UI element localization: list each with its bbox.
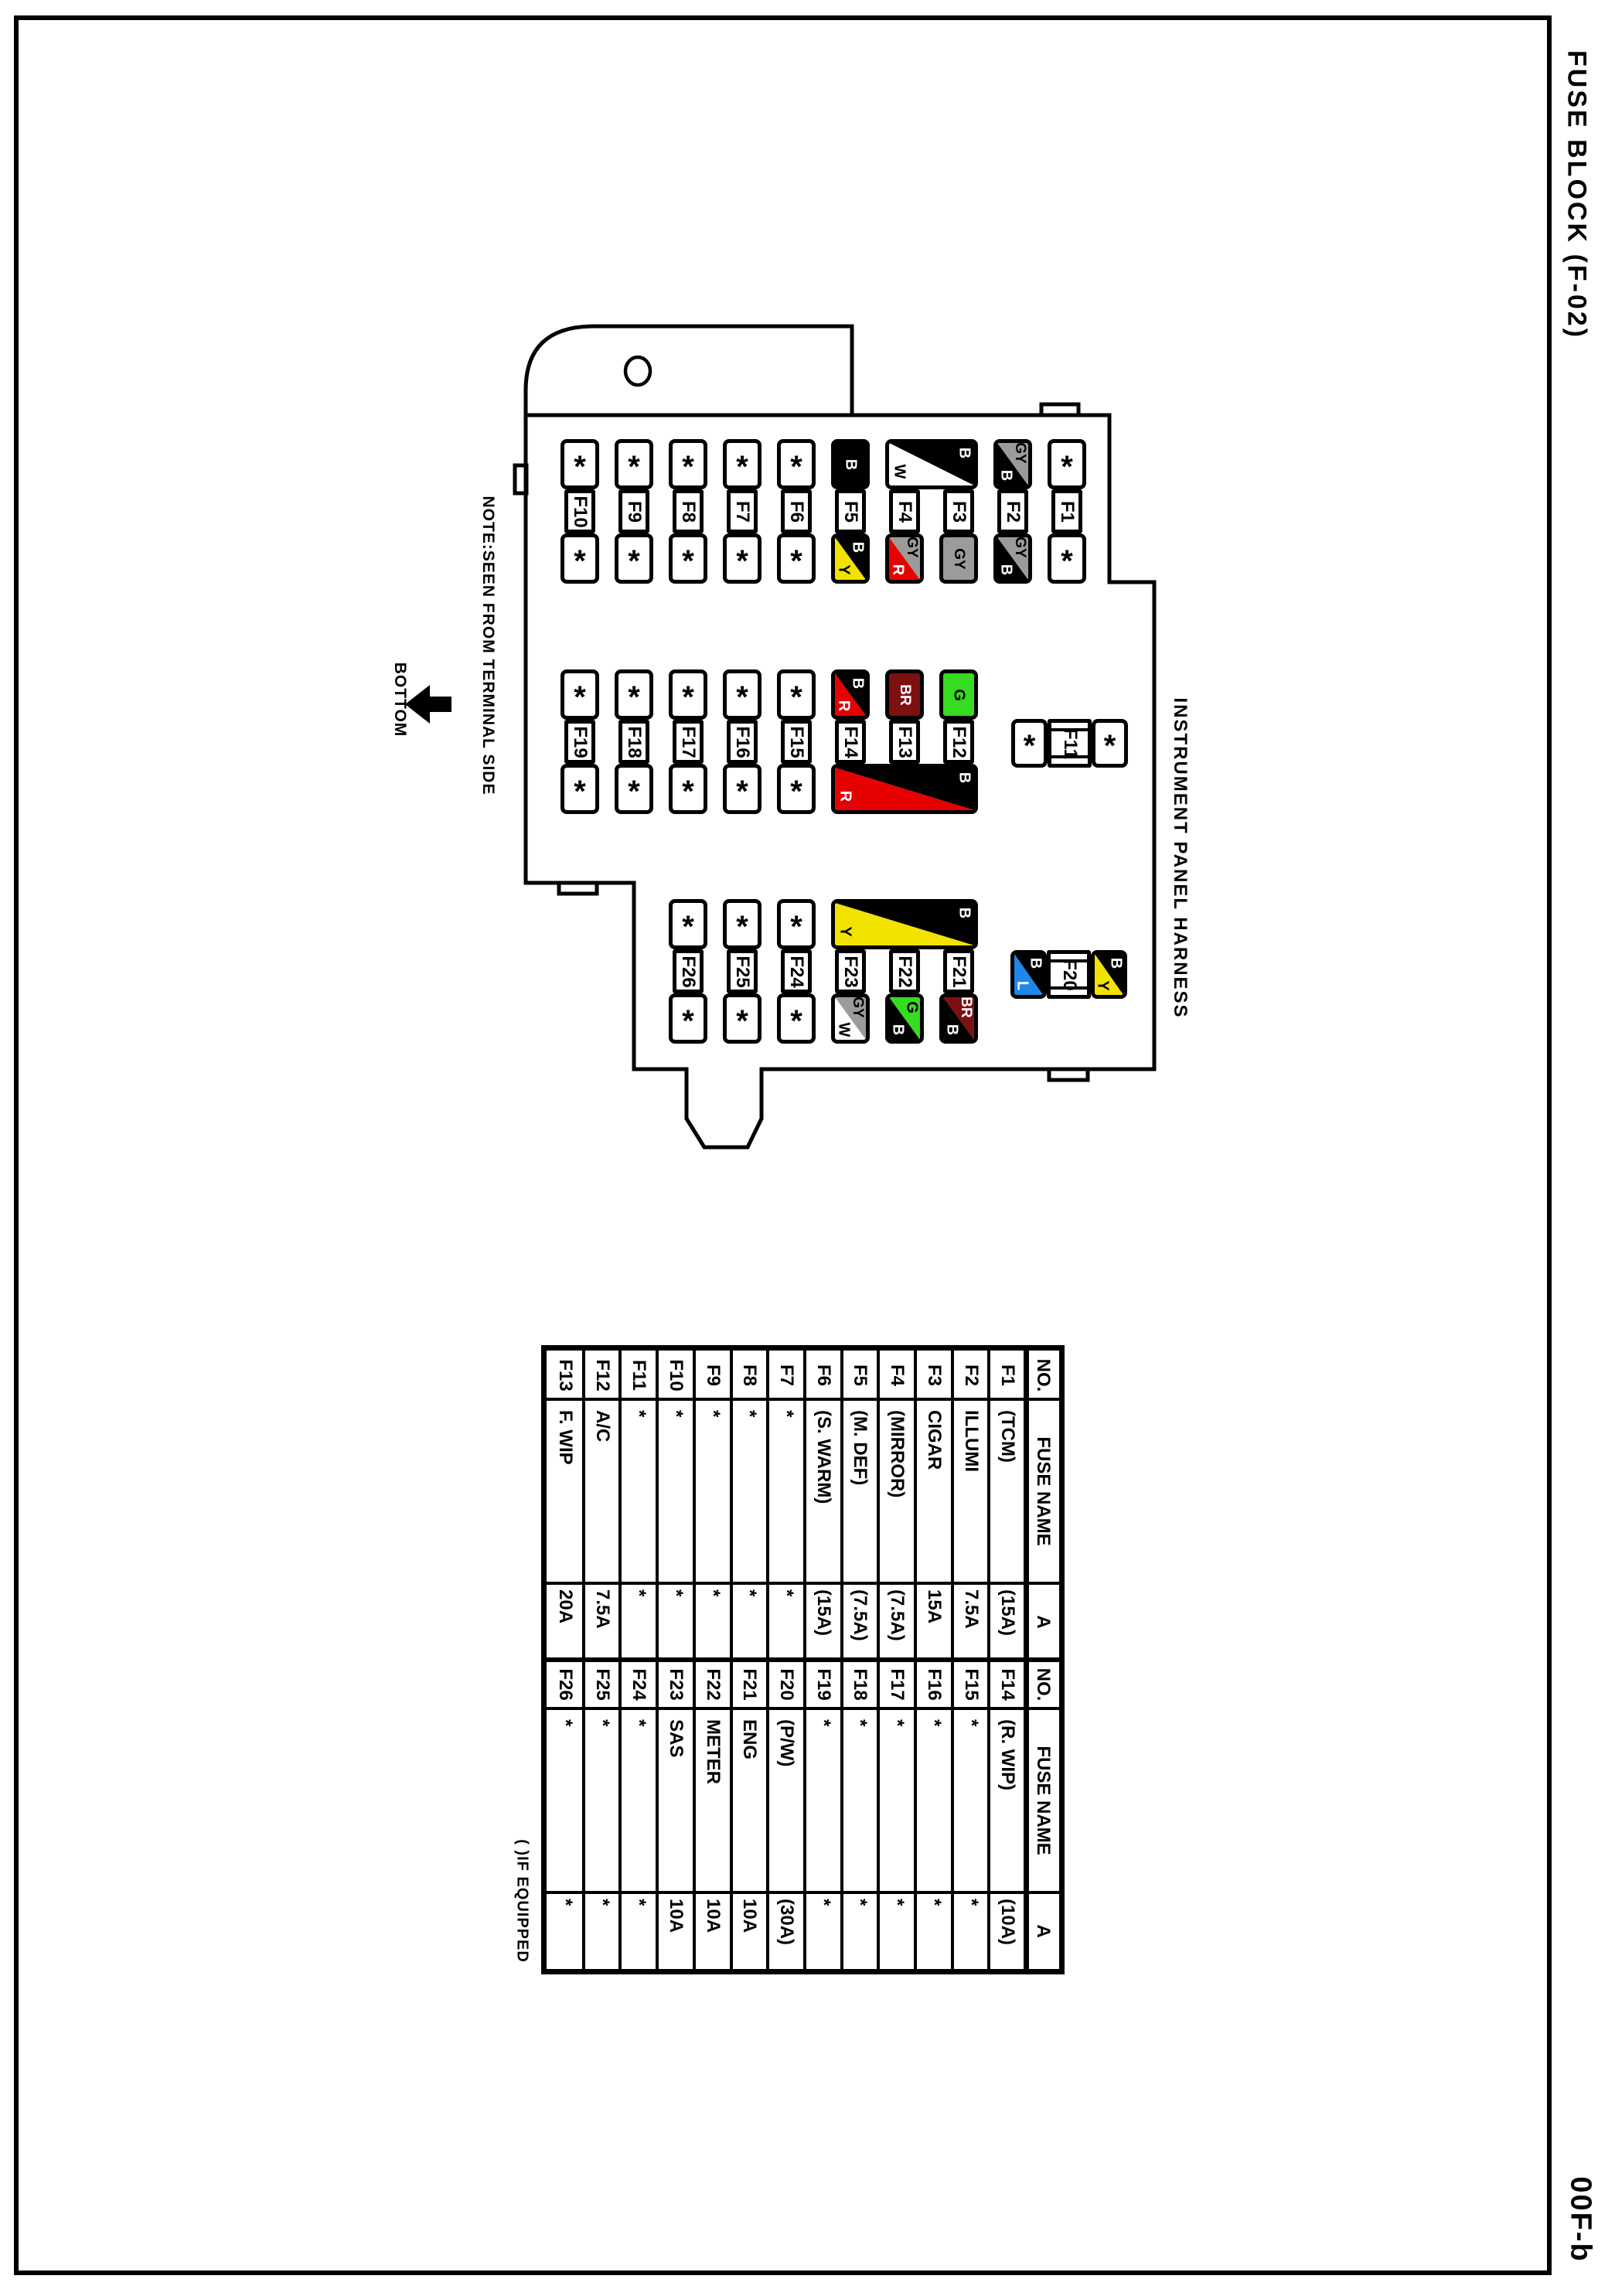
fuse-F8-label: F8 bbox=[677, 500, 699, 522]
fuse-F17-top-cap: * bbox=[669, 669, 707, 720]
cell-F4-amp: (7.5A) bbox=[886, 1589, 908, 1641]
wide-cap-row1-top-tr-code: B bbox=[956, 448, 973, 458]
cell-F8-name: * bbox=[738, 1410, 760, 1417]
fuse-F26-top-cap: * bbox=[669, 899, 707, 949]
fuse-F16-bottom-cap: * bbox=[723, 764, 762, 814]
cell-F17-amp: * bbox=[886, 1899, 908, 1906]
mounting-hole bbox=[625, 357, 650, 385]
cell-F7-no: F7 bbox=[775, 1364, 797, 1385]
fuse-F9-top-cap: * bbox=[615, 439, 653, 489]
cell-F22-no: F22 bbox=[702, 1668, 724, 1700]
cell-F8-amp: * bbox=[738, 1589, 760, 1596]
cell-F17-name: * bbox=[886, 1719, 908, 1726]
cell-F14-no: F14 bbox=[997, 1668, 1018, 1700]
cell-F5-no: F5 bbox=[849, 1364, 871, 1385]
fuse-F21-label: F21 bbox=[948, 956, 969, 987]
fuse-F10-label: F10 bbox=[569, 496, 591, 527]
cell-F6-no: F6 bbox=[813, 1364, 834, 1385]
unused-star-icon: * bbox=[682, 910, 694, 945]
fuse-F7-label: F7 bbox=[731, 500, 753, 522]
fuse-F25-bottom-cap: * bbox=[723, 993, 762, 1044]
cell-F25-amp: * bbox=[591, 1899, 613, 1906]
fuse-F10-top-cap: * bbox=[560, 439, 599, 489]
table-header-1: FUSE NAME bbox=[1032, 1436, 1054, 1545]
fuse-F21-bottom-cap-tr-code: BR bbox=[957, 996, 974, 1017]
fuse-F23-bottom-cap-bl-code: W bbox=[835, 1023, 853, 1037]
fuse-F24-top-cap: * bbox=[777, 899, 816, 949]
page-title: FUSE BLOCK (F-02) bbox=[1562, 50, 1592, 339]
cell-F5-amp: (7.5A) bbox=[849, 1589, 871, 1641]
cell-F25-no: F25 bbox=[591, 1668, 613, 1700]
fuse-F10-bottom-cap: * bbox=[560, 533, 599, 584]
table-header-3: NO. bbox=[1032, 1667, 1054, 1701]
cell-F6-name: (S. WARM) bbox=[813, 1410, 834, 1504]
fuse-F5-bottom-cap-tr-code: B bbox=[849, 541, 867, 552]
cell-F13-no: F13 bbox=[554, 1359, 576, 1391]
cell-F19-name: * bbox=[813, 1719, 834, 1726]
unused-star-icon: * bbox=[736, 544, 748, 579]
fuse-F21-bottom-cap-bl-code: B bbox=[943, 1024, 961, 1035]
unused-star-icon: * bbox=[790, 680, 802, 715]
cell-F13-amp: 20A bbox=[554, 1589, 576, 1623]
fuse-F14-top-cap bbox=[831, 669, 870, 720]
block-raised-section bbox=[526, 326, 852, 415]
fuse-F2-bottom-cap-bl-code: B bbox=[997, 564, 1015, 575]
fuse-F15-bottom-cap: * bbox=[777, 764, 816, 814]
fuse-F19-top-cap: * bbox=[560, 669, 599, 720]
fuse-F19-bottom-cap: * bbox=[560, 764, 599, 814]
cell-F18-amp: * bbox=[849, 1899, 871, 1906]
cell-F19-no: F19 bbox=[813, 1668, 834, 1700]
fuse-F26-bottom-cap: * bbox=[669, 993, 707, 1044]
unused-star-icon: * bbox=[574, 544, 586, 579]
cell-F16-amp: * bbox=[923, 1899, 945, 1906]
cell-F15-no: F15 bbox=[960, 1668, 982, 1700]
fuse-F15-label: F15 bbox=[785, 726, 807, 758]
cell-F9-no: F9 bbox=[702, 1364, 724, 1385]
cell-F20-name: (P/W) bbox=[775, 1719, 797, 1766]
cell-F8-no: F8 bbox=[738, 1364, 760, 1385]
fuse-F12-top-cap-code: G bbox=[950, 689, 968, 701]
unused-star-icon: * bbox=[628, 680, 640, 715]
cell-F21-no: F21 bbox=[738, 1668, 760, 1700]
cell-F19-amp: * bbox=[813, 1899, 834, 1906]
cell-F1-amp: (15A) bbox=[997, 1589, 1018, 1636]
cell-F24-no: F24 bbox=[628, 1668, 649, 1700]
cell-F10-name: * bbox=[665, 1410, 687, 1417]
fuse-F14-label: F14 bbox=[840, 726, 861, 758]
cell-F22-amp: 10A bbox=[702, 1899, 724, 1933]
cell-F16-name: * bbox=[923, 1719, 945, 1726]
fuse-F1-label: F1 bbox=[1056, 500, 1078, 522]
fuse-F11-right-cap: * bbox=[1092, 719, 1128, 768]
cell-F6-amp: (15A) bbox=[813, 1589, 834, 1636]
unused-star-icon: * bbox=[574, 680, 586, 715]
cell-F18-no: F18 bbox=[849, 1668, 871, 1700]
fuse-F22-bottom-cap-bl-code: B bbox=[889, 1024, 907, 1035]
unused-star-icon: * bbox=[736, 775, 748, 809]
cell-F25-name: * bbox=[591, 1719, 613, 1726]
fuse-F5-bottom-cap bbox=[831, 533, 870, 584]
cell-F21-amp: 10A bbox=[738, 1899, 760, 1933]
cell-F11-no: F11 bbox=[628, 1359, 649, 1390]
fuse-F4-label: F4 bbox=[894, 500, 915, 522]
page-code: 00F-b bbox=[1564, 2176, 1597, 2262]
fuse-F4-bottom-cap-bl-code: R bbox=[889, 564, 907, 575]
fuse-F20-left-cap-tr-code: B bbox=[1026, 958, 1044, 969]
fuse-F16-label: F16 bbox=[731, 726, 753, 758]
fuse-F4-bottom-cap-tr-code: GY bbox=[903, 537, 920, 557]
cell-F26-name: * bbox=[554, 1719, 576, 1726]
cell-F11-amp: * bbox=[628, 1589, 649, 1596]
cell-F20-no: F20 bbox=[775, 1668, 797, 1700]
unused-star-icon: * bbox=[1104, 729, 1116, 764]
fuse-F19-label: F19 bbox=[569, 726, 591, 758]
table-header-5: A bbox=[1032, 1924, 1054, 1937]
unused-star-icon: * bbox=[790, 910, 802, 945]
cell-F4-name: (MIRROR) bbox=[886, 1410, 908, 1497]
unused-star-icon: * bbox=[1024, 729, 1036, 764]
fuse-F23-bottom-cap-tr-code: GY bbox=[849, 996, 866, 1017]
cell-F12-no: F12 bbox=[591, 1359, 613, 1391]
cell-F14-name: (R. WIP) bbox=[997, 1719, 1018, 1790]
cell-F22-name: METER bbox=[702, 1719, 724, 1784]
fuse-F11-label: F11 bbox=[1059, 727, 1081, 758]
fuse-F7-top-cap: * bbox=[723, 439, 762, 489]
table-header-0: NO. bbox=[1032, 1358, 1054, 1392]
fuse-F5-label: F5 bbox=[840, 500, 861, 522]
fuse-F14-top-cap-tr-code: B bbox=[849, 677, 867, 688]
wide-cap-row2-bottom-bl-code: R bbox=[836, 790, 854, 801]
table-hline bbox=[547, 1891, 1059, 1894]
fuse-F22-bottom-cap-tr-code: G bbox=[903, 1001, 921, 1013]
fuse-F8-bottom-cap: * bbox=[669, 533, 707, 584]
fuse-F5-top-cap-code: B bbox=[842, 458, 860, 469]
cell-F1-name: (TCM) bbox=[997, 1410, 1018, 1463]
fuse-F12-label: F12 bbox=[948, 726, 969, 758]
cell-F10-no: F10 bbox=[665, 1359, 687, 1391]
terminal-side-note: NOTE:SEEN FROM TERMINAL SIDE bbox=[479, 496, 497, 795]
wide-cap-row3-top-tr-code: B bbox=[956, 908, 973, 918]
cell-F9-name: * bbox=[702, 1410, 724, 1417]
cell-F5-name: (M. DEF) bbox=[849, 1410, 871, 1485]
cell-F23-no: F23 bbox=[665, 1668, 687, 1700]
table-hline bbox=[547, 1707, 1059, 1710]
fuse-F22-label: F22 bbox=[894, 956, 915, 987]
harness-label: INSTRUMENT PANEL HARNESS bbox=[1169, 697, 1191, 1018]
bottom-label: BOTTOM bbox=[390, 663, 409, 738]
cell-F16-no: F16 bbox=[923, 1668, 945, 1700]
table-hline bbox=[547, 1398, 1059, 1401]
fuse-F2-top-cap-bl-code: B bbox=[997, 470, 1015, 481]
fuse-F13-label: F13 bbox=[894, 726, 915, 758]
table-hline bbox=[547, 1657, 1059, 1662]
fuse-F18-top-cap: * bbox=[615, 669, 653, 720]
cell-F24-name: * bbox=[628, 1719, 649, 1726]
cell-F2-amp: 7.5A bbox=[960, 1589, 982, 1629]
unused-star-icon: * bbox=[628, 450, 640, 485]
unused-star-icon: * bbox=[682, 450, 694, 485]
unused-star-icon: * bbox=[736, 1004, 748, 1039]
unused-star-icon: * bbox=[1061, 450, 1073, 485]
fuse-F20-right-cap-bl-code: Y bbox=[1094, 980, 1112, 990]
cell-F7-name: * bbox=[775, 1410, 797, 1417]
unused-star-icon: * bbox=[574, 450, 586, 485]
cell-F2-no: F2 bbox=[960, 1364, 982, 1385]
fuse-F26-label: F26 bbox=[677, 956, 699, 987]
cell-F3-no: F3 bbox=[923, 1364, 945, 1385]
fuse-F6-label: F6 bbox=[785, 500, 807, 522]
unused-star-icon: * bbox=[1061, 544, 1073, 579]
unused-star-icon: * bbox=[790, 1004, 802, 1039]
table-header-2: A bbox=[1032, 1615, 1054, 1628]
fuse-F1-top-cap: * bbox=[1048, 439, 1086, 489]
table-header-4: FUSE NAME bbox=[1032, 1746, 1054, 1855]
cell-F3-amp: 15A bbox=[923, 1589, 945, 1623]
cell-F1-no: F1 bbox=[997, 1364, 1018, 1385]
cell-F26-amp: * bbox=[554, 1899, 576, 1906]
cell-F20-amp: (30A) bbox=[775, 1899, 797, 1945]
wide-cap-row1-top-bl-code: W bbox=[891, 464, 908, 479]
cell-F18-name: * bbox=[849, 1719, 871, 1726]
fuse-F25-label: F25 bbox=[731, 956, 753, 987]
cell-F12-amp: 7.5A bbox=[591, 1589, 613, 1629]
cell-F14-amp: (10A) bbox=[997, 1899, 1018, 1945]
fuse-F25-top-cap: * bbox=[723, 899, 762, 949]
unused-star-icon: * bbox=[682, 1004, 694, 1039]
wide-cap-row2-bottom-tr-code: B bbox=[956, 772, 973, 783]
cell-F12-name: A/C bbox=[591, 1410, 613, 1442]
unused-star-icon: * bbox=[736, 680, 748, 715]
fuse-F24-label: F24 bbox=[785, 956, 807, 987]
unused-star-icon: * bbox=[628, 544, 640, 579]
cell-F13-name: F. WIP bbox=[554, 1410, 576, 1465]
unused-star-icon: * bbox=[682, 544, 694, 579]
fuse-F9-label: F9 bbox=[623, 500, 645, 522]
fuse-F3-label: F3 bbox=[948, 500, 969, 522]
fuse-F8-top-cap: * bbox=[669, 439, 707, 489]
fuse-F9-bottom-cap: * bbox=[615, 533, 653, 584]
unused-star-icon: * bbox=[628, 775, 640, 809]
wide-cap-row2-bottom bbox=[831, 764, 978, 814]
cell-F23-name: SAS bbox=[665, 1719, 687, 1757]
cell-F15-amp: * bbox=[960, 1899, 982, 1906]
table-hline bbox=[547, 1582, 1059, 1585]
fuse-F17-label: F17 bbox=[677, 726, 699, 758]
fuse-F11-left-cap: * bbox=[1011, 719, 1048, 768]
unused-star-icon: * bbox=[790, 544, 802, 579]
cell-F21-name: ENG bbox=[738, 1719, 760, 1759]
bottom-arrow-icon bbox=[405, 685, 451, 724]
fuse-F5-bottom-cap-bl-code: Y bbox=[835, 565, 853, 575]
cell-F9-amp: * bbox=[702, 1589, 724, 1596]
unused-star-icon: * bbox=[682, 775, 694, 809]
if-equipped-note: ( )IF EQUIPPED bbox=[513, 1839, 531, 1963]
fuse-F20-right-cap-tr-code: B bbox=[1106, 958, 1124, 969]
cell-F3-name: CIGAR bbox=[923, 1410, 945, 1470]
unused-star-icon: * bbox=[736, 910, 748, 945]
fuse-F18-label: F18 bbox=[623, 726, 645, 758]
fuse-F15-top-cap: * bbox=[777, 669, 816, 720]
fuse-F13-top-cap-code: BR bbox=[896, 684, 913, 705]
fuse-F2-top-cap-tr-code: GY bbox=[1011, 442, 1028, 463]
fuse-F2-label: F2 bbox=[1002, 500, 1024, 522]
fuse-F2-bottom-cap-tr-code: GY bbox=[1011, 537, 1028, 557]
cell-F2-name: ILLUMI bbox=[960, 1410, 982, 1472]
unused-star-icon: * bbox=[790, 450, 802, 485]
fuse-F17-bottom-cap: * bbox=[669, 764, 707, 814]
cell-F7-amp: * bbox=[775, 1589, 797, 1596]
cell-F10-amp: * bbox=[665, 1589, 687, 1596]
wide-cap-row3-top bbox=[831, 899, 978, 949]
fuse-F18-bottom-cap: * bbox=[615, 764, 653, 814]
fuse-F16-top-cap: * bbox=[723, 669, 762, 720]
cell-F15-name: * bbox=[960, 1719, 982, 1726]
cell-F24-amp: * bbox=[628, 1899, 649, 1906]
fuse-F14-top-cap-bl-code: R bbox=[835, 700, 853, 711]
fuse-F3-bottom-cap-code: GY bbox=[950, 548, 967, 569]
unused-star-icon: * bbox=[574, 775, 586, 809]
fuse-F24-bottom-cap: * bbox=[777, 993, 816, 1044]
cell-F11-name: * bbox=[628, 1410, 649, 1417]
cell-F4-no: F4 bbox=[886, 1364, 908, 1385]
fuse-F6-top-cap: * bbox=[777, 439, 816, 489]
fuse-F20-left-cap-bl-code: L bbox=[1014, 981, 1031, 990]
cell-F26-no: F26 bbox=[554, 1668, 576, 1700]
unused-star-icon: * bbox=[736, 450, 748, 485]
wide-cap-row3-top-bl-code: Y bbox=[836, 926, 854, 936]
fuse-F23-label: F23 bbox=[840, 956, 861, 987]
fuse-F20-label: F20 bbox=[1058, 959, 1080, 990]
fuse-F1-bottom-cap: * bbox=[1048, 533, 1086, 584]
unused-star-icon: * bbox=[790, 775, 802, 809]
unused-star-icon: * bbox=[682, 680, 694, 715]
manual-page: FUSE BLOCK (F-02) 00F-b NOTE:SEEN FROM T… bbox=[0, 0, 1615, 2296]
fuse-F7-bottom-cap: * bbox=[723, 533, 762, 584]
cell-F23-amp: 10A bbox=[665, 1899, 687, 1933]
cell-F17-no: F17 bbox=[886, 1668, 908, 1700]
fuse-F6-bottom-cap: * bbox=[777, 533, 816, 584]
